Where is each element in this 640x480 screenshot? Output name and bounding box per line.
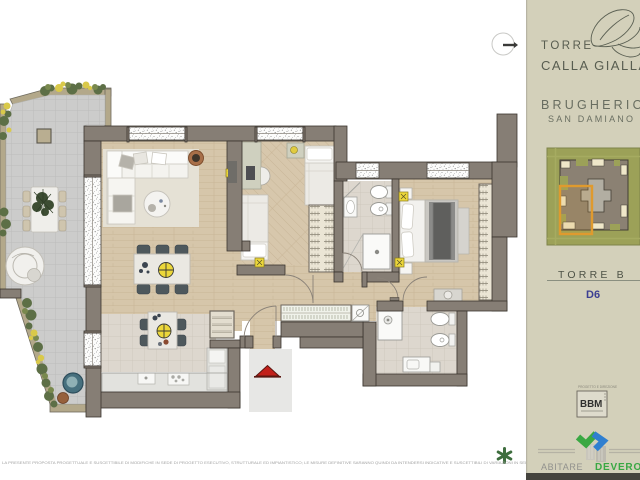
svg-text:TORRE B: TORRE B [558, 269, 627, 281]
svg-text:D6: D6 [586, 289, 600, 301]
svg-text:SAN DAMIANO: SAN DAMIANO [548, 114, 635, 124]
svg-text:BRUGHERIO: BRUGHERIO [541, 98, 640, 112]
svg-text:TORRE: TORRE [541, 40, 594, 52]
svg-text:CALLA GIALLA: CALLA GIALLA [541, 58, 640, 73]
svg-text:DEVERO: DEVERO [595, 462, 640, 473]
svg-text:PROGETTO E DIREZIONE: PROGETTO E DIREZIONE [578, 385, 617, 389]
svg-text:LA PRESENTE PROPOSTA PROGETTUA: LA PRESENTE PROPOSTA PROGETTUALE E SUSCE… [2, 460, 556, 465]
svg-text:ABITARE: ABITARE [541, 462, 583, 472]
svg-text:BBM: BBM [580, 399, 602, 410]
